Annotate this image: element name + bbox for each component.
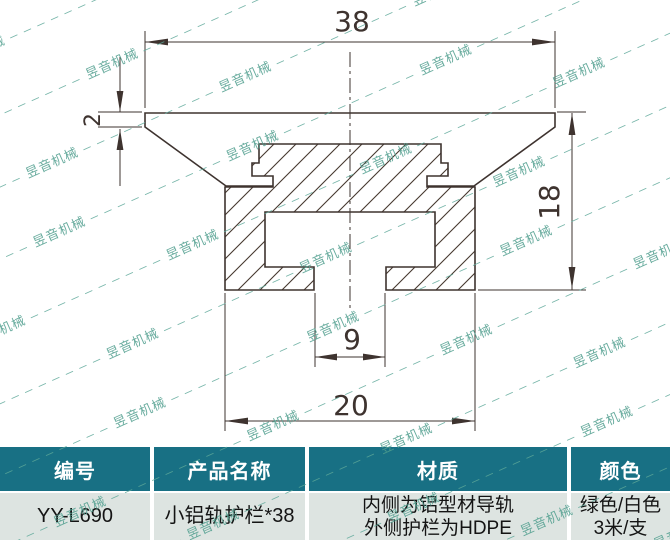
cell-color-line2: 3米/支: [594, 517, 648, 540]
col-header-product-name: 产品名称: [154, 447, 305, 491]
dim-label-20: 20: [333, 389, 369, 422]
spec-table: 编号 产品名称 材质 颜色 YY-L690 小铝轨护栏*38 内侧为铝型材导轨 …: [0, 447, 670, 540]
dim-label-38: 38: [334, 5, 370, 38]
cell-code: YY-L690: [0, 493, 150, 540]
dimension-slot-width: 9: [315, 293, 385, 367]
dim-label-2: 2: [81, 113, 106, 127]
col-header-material: 材质: [309, 447, 567, 491]
dimension-base-width: 20: [225, 293, 475, 431]
col-header-color: 颜色: [571, 447, 670, 491]
cell-material: 内侧为铝型材导轨 外侧护栏为HDPE: [309, 493, 567, 540]
technical-drawing: 38 2 18 9 20: [0, 0, 670, 447]
cell-material-line2: 外侧护栏为HDPE: [364, 517, 512, 540]
cell-color-line1: 绿色/白色: [580, 494, 661, 517]
col-header-code: 编号: [0, 447, 150, 491]
dim-label-18: 18: [533, 184, 566, 220]
cell-color: 绿色/白色 3米/支: [571, 493, 670, 540]
spec-table-row: YY-L690 小铝轨护栏*38 内侧为铝型材导轨 外侧护栏为HDPE 绿色/白…: [0, 493, 670, 540]
spec-table-header: 编号 产品名称 材质 颜色: [0, 447, 670, 491]
cell-material-line1: 内侧为铝型材导轨: [362, 494, 514, 517]
cell-product-name: 小铝轨护栏*38: [154, 493, 305, 540]
dim-label-9: 9: [343, 323, 361, 356]
dimension-cap-thickness: 2: [81, 57, 142, 186]
